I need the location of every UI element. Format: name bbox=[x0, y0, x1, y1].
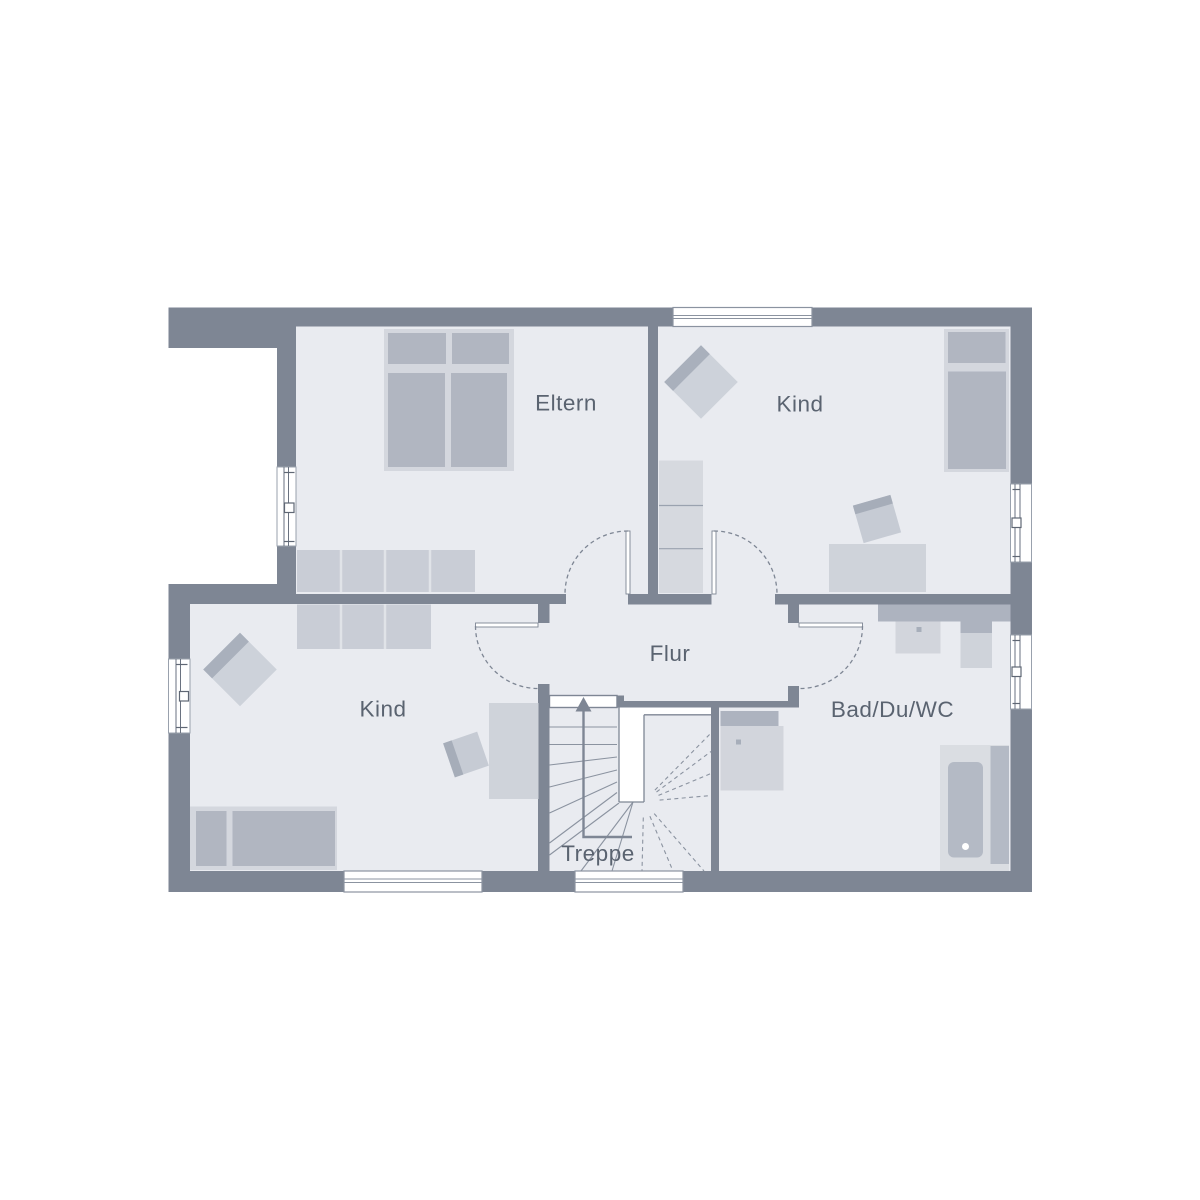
svg-text:Flur: Flur bbox=[650, 641, 691, 666]
svg-text:Eltern: Eltern bbox=[535, 391, 597, 416]
svg-text:Kind: Kind bbox=[359, 697, 406, 722]
svg-text:Treppe: Treppe bbox=[561, 841, 634, 866]
svg-text:Kind: Kind bbox=[776, 392, 823, 417]
svg-text:Bad/Du/WC: Bad/Du/WC bbox=[831, 697, 954, 722]
